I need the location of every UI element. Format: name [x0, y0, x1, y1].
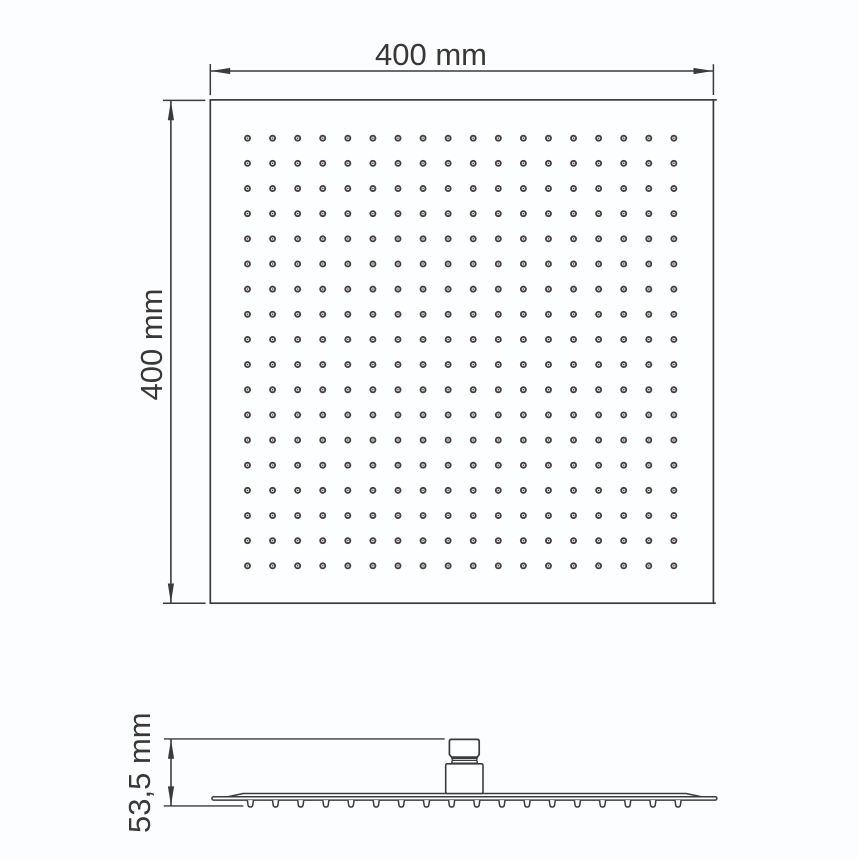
svg-text:53,5 mm: 53,5 mm: [122, 712, 157, 833]
svg-text:400 mm: 400 mm: [134, 289, 169, 401]
svg-text:400 mm: 400 mm: [375, 37, 487, 72]
